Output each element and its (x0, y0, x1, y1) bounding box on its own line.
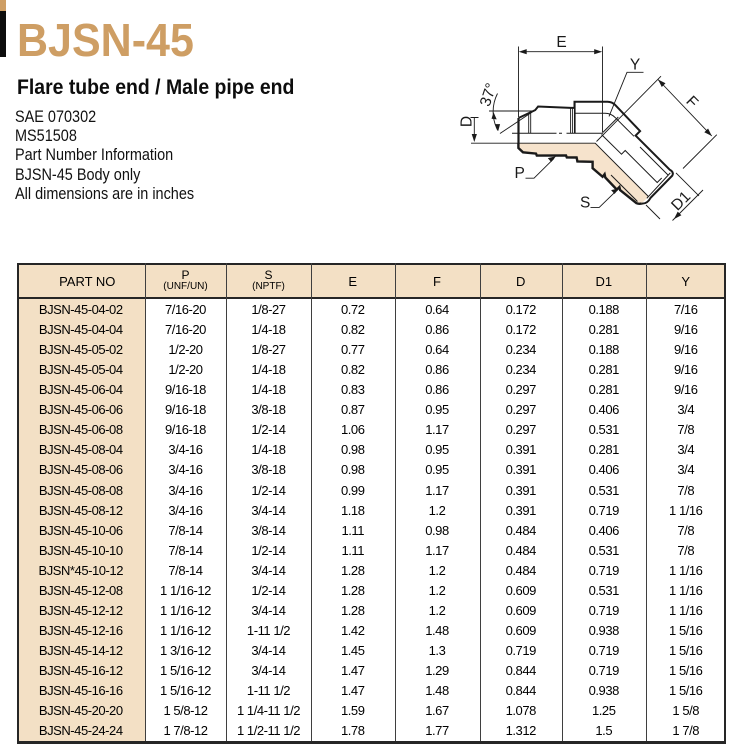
svg-text:P: P (515, 165, 525, 182)
svg-text:E: E (556, 34, 566, 51)
svg-text:D1: D1 (668, 188, 694, 214)
svg-text:D: D (459, 116, 476, 127)
svg-text:37°: 37° (477, 81, 500, 109)
svg-text:Y: Y (630, 57, 640, 74)
svg-text:S: S (580, 194, 590, 211)
